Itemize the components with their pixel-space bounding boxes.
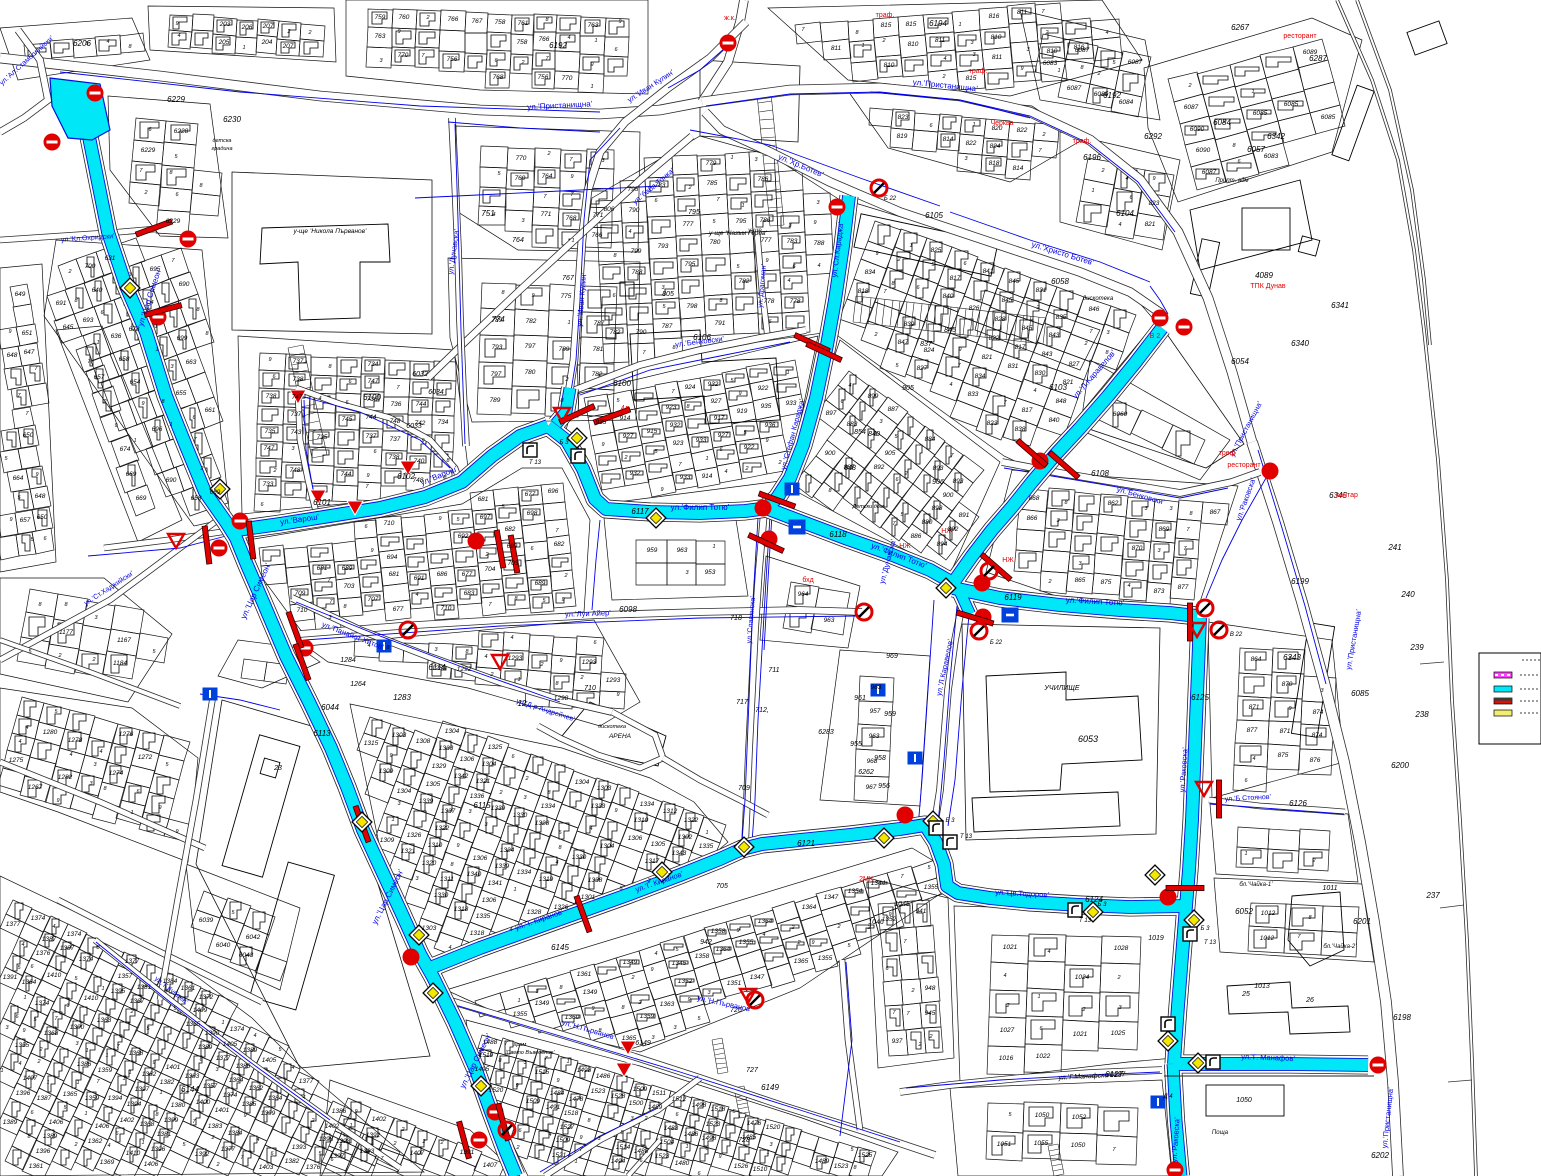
svg-text:9: 9 <box>579 1135 582 1141</box>
svg-text:824: 824 <box>924 347 935 354</box>
svg-text:1: 1 <box>130 810 133 816</box>
svg-text:1359: 1359 <box>640 1013 655 1020</box>
svg-text:9: 9 <box>9 517 12 523</box>
svg-text:1: 1 <box>517 998 520 1004</box>
svg-text:764: 764 <box>542 173 553 180</box>
svg-text:1369: 1369 <box>100 1159 115 1166</box>
svg-text:1292: 1292 <box>457 666 472 673</box>
svg-text:1374: 1374 <box>67 931 82 938</box>
svg-text:1: 1 <box>517 677 520 683</box>
svg-text:1310: 1310 <box>634 817 649 824</box>
svg-text:736: 736 <box>367 396 378 403</box>
svg-text:651: 651 <box>22 330 33 337</box>
svg-text:846: 846 <box>1089 306 1100 313</box>
svg-text:1303: 1303 <box>392 732 407 739</box>
svg-text:детска: детска <box>213 138 232 144</box>
svg-text:4: 4 <box>150 300 153 306</box>
svg-text:841: 841 <box>983 268 994 275</box>
svg-text:1365: 1365 <box>622 1035 637 1042</box>
svg-text:1011: 1011 <box>1322 885 1337 892</box>
svg-text:1402: 1402 <box>372 1116 387 1123</box>
svg-text:9: 9 <box>590 62 593 68</box>
svg-text:698: 698 <box>527 510 538 517</box>
svg-text:1397: 1397 <box>135 1086 150 1093</box>
svg-text:2: 2 <box>579 675 583 681</box>
svg-text:Д 4: Д 4 <box>1162 1094 1173 1100</box>
svg-text:865: 865 <box>1075 577 1086 584</box>
svg-text:727: 727 <box>746 1067 759 1074</box>
svg-text:9: 9 <box>618 19 621 25</box>
svg-text:874: 874 <box>1312 732 1323 739</box>
svg-text:1324: 1324 <box>500 847 515 854</box>
svg-text:2: 2 <box>564 377 568 383</box>
svg-text:1315: 1315 <box>364 740 379 747</box>
svg-text:9: 9 <box>765 438 768 444</box>
svg-text:737: 737 <box>293 358 304 365</box>
svg-text:1306: 1306 <box>460 756 475 763</box>
svg-text:744: 744 <box>341 471 352 478</box>
svg-text:645: 645 <box>63 324 74 331</box>
svg-text:6090: 6090 <box>1190 126 1205 133</box>
svg-text:737: 737 <box>390 436 401 443</box>
svg-text:814: 814 <box>1013 165 1024 172</box>
svg-text:835: 835 <box>1056 314 1067 321</box>
svg-text:6098: 6098 <box>619 605 637 614</box>
svg-text:828: 828 <box>995 316 1006 323</box>
svg-text:1376: 1376 <box>36 950 51 957</box>
svg-text:6100: 6100 <box>613 379 631 388</box>
svg-text:6202: 6202 <box>1371 1151 1389 1160</box>
svg-text:1: 1 <box>128 1070 131 1076</box>
svg-text:893: 893 <box>953 478 964 485</box>
svg-text:6117: 6117 <box>631 507 649 516</box>
svg-text:1334: 1334 <box>640 801 655 808</box>
svg-text:1509: 1509 <box>556 1137 571 1144</box>
svg-text:712,: 712, <box>755 707 769 714</box>
svg-text:815: 815 <box>881 22 892 29</box>
svg-text:9: 9 <box>175 829 178 835</box>
svg-text:891: 891 <box>959 512 970 519</box>
svg-text:657: 657 <box>20 517 31 524</box>
svg-text:2: 2 <box>643 1116 647 1122</box>
svg-text:906: 906 <box>932 479 944 486</box>
svg-text:6104: 6104 <box>1116 209 1134 218</box>
svg-text:2: 2 <box>36 1059 40 1065</box>
svg-text:6087: 6087 <box>1067 85 1082 92</box>
svg-text:УЧИЛИЩЕ: УЧИЛИЩЕ <box>1043 685 1079 692</box>
svg-text:1330: 1330 <box>572 854 587 861</box>
svg-text:781: 781 <box>593 346 604 353</box>
svg-text:747: 747 <box>292 394 303 401</box>
svg-text:1: 1 <box>766 1150 769 1156</box>
svg-text:870: 870 <box>1282 681 1293 688</box>
svg-text:4: 4 <box>1105 30 1108 36</box>
svg-text:770: 770 <box>516 155 527 162</box>
svg-text:1284: 1284 <box>340 657 356 664</box>
svg-text:758: 758 <box>517 39 528 46</box>
svg-text:1303: 1303 <box>422 925 437 932</box>
svg-text:1337: 1337 <box>441 808 456 815</box>
svg-text:2: 2 <box>881 38 885 44</box>
svg-text:траф.: траф. <box>876 12 895 19</box>
svg-text:1022: 1022 <box>1036 1053 1051 1060</box>
svg-text:697: 697 <box>480 514 491 521</box>
svg-text:1: 1 <box>685 1144 688 1150</box>
svg-text:4: 4 <box>628 229 631 235</box>
svg-text:траф.: траф. <box>969 68 988 75</box>
svg-text:9: 9 <box>660 487 663 493</box>
svg-text:9: 9 <box>614 808 617 814</box>
svg-text:1: 1 <box>1091 188 1094 194</box>
svg-text:2: 2 <box>524 776 528 782</box>
svg-text:830: 830 <box>1035 370 1046 377</box>
svg-text:831: 831 <box>1008 363 1019 370</box>
svg-text:9: 9 <box>389 753 392 759</box>
svg-text:905: 905 <box>885 450 896 457</box>
svg-text:1396: 1396 <box>151 1146 166 1153</box>
svg-text:4: 4 <box>724 469 727 475</box>
svg-text:897: 897 <box>826 410 837 417</box>
svg-text:1: 1 <box>221 1020 224 1026</box>
svg-text:932: 932 <box>708 381 719 388</box>
svg-text:690: 690 <box>179 281 190 288</box>
svg-text:953: 953 <box>705 569 716 576</box>
svg-text:1393: 1393 <box>292 1144 307 1151</box>
svg-text:738: 738 <box>293 376 304 383</box>
svg-text:1355: 1355 <box>739 939 754 946</box>
svg-text:710: 710 <box>584 685 596 692</box>
svg-text:треф: треф <box>1219 450 1236 457</box>
svg-text:923: 923 <box>673 440 684 447</box>
svg-text:886: 886 <box>911 533 922 540</box>
svg-text:4: 4 <box>817 263 820 269</box>
svg-text:669: 669 <box>136 495 147 502</box>
svg-text:1308: 1308 <box>416 738 431 745</box>
svg-text:805: 805 <box>662 291 674 298</box>
svg-text:1518: 1518 <box>564 1110 579 1117</box>
svg-text:1334: 1334 <box>541 803 556 810</box>
svg-text:4: 4 <box>291 1065 294 1071</box>
svg-text:4: 4 <box>415 592 418 598</box>
svg-text:6144: 6144 <box>181 1085 199 1094</box>
svg-text:9: 9 <box>738 391 741 397</box>
svg-text:1397: 1397 <box>330 1153 345 1160</box>
svg-text:1051: 1051 <box>997 1141 1012 1148</box>
svg-text:238: 238 <box>1414 710 1429 719</box>
svg-text:811: 811 <box>992 54 1003 61</box>
svg-text:726: 726 <box>730 1007 742 1014</box>
svg-text:1024: 1024 <box>1075 974 1090 981</box>
svg-text:1345: 1345 <box>672 960 687 967</box>
svg-text:768: 768 <box>493 74 504 81</box>
svg-text:Т 13: Т 13 <box>529 460 542 466</box>
svg-text:1: 1 <box>96 340 99 346</box>
svg-text:1335: 1335 <box>476 913 491 920</box>
svg-text:1396: 1396 <box>16 1090 31 1097</box>
svg-text:677: 677 <box>462 571 473 578</box>
svg-text:6085: 6085 <box>1094 91 1109 98</box>
svg-text:822: 822 <box>966 140 977 147</box>
svg-text:1336: 1336 <box>470 793 485 800</box>
svg-text:1344: 1344 <box>871 880 886 887</box>
svg-text:689: 689 <box>535 580 546 587</box>
svg-text:4: 4 <box>548 1132 551 1138</box>
svg-text:854: 854 <box>854 429 866 436</box>
svg-text:9: 9 <box>421 438 424 444</box>
svg-text:4: 4 <box>302 1095 305 1101</box>
svg-text:1364: 1364 <box>22 979 37 986</box>
svg-text:833: 833 <box>968 391 979 398</box>
svg-text:6089: 6089 <box>1303 49 1318 56</box>
svg-text:838: 838 <box>1015 426 1026 433</box>
svg-text:1500: 1500 <box>629 1100 644 1107</box>
svg-text:955: 955 <box>850 741 862 748</box>
svg-text:1521: 1521 <box>552 1152 567 1159</box>
svg-text:963: 963 <box>824 617 835 624</box>
svg-text:2: 2 <box>286 29 290 35</box>
svg-text:4: 4 <box>107 1143 110 1149</box>
svg-text:1364: 1364 <box>758 918 773 925</box>
svg-text:6149: 6149 <box>761 1083 779 1092</box>
svg-text:23: 23 <box>273 765 282 772</box>
svg-text:1: 1 <box>85 1048 88 1054</box>
svg-text:790: 790 <box>636 329 647 336</box>
svg-text:922: 922 <box>744 444 755 451</box>
svg-text:2: 2 <box>546 151 550 157</box>
svg-text:9: 9 <box>591 1006 594 1012</box>
svg-text:1328: 1328 <box>535 820 550 827</box>
svg-text:6292: 6292 <box>1144 132 1162 141</box>
svg-text:бл.’Чайка-1’: бл.’Чайка-1’ <box>1239 881 1273 888</box>
svg-text:6054: 6054 <box>1231 357 1249 366</box>
svg-text:1: 1 <box>571 238 574 244</box>
svg-text:1347: 1347 <box>750 974 765 981</box>
svg-text:1: 1 <box>122 1076 125 1082</box>
svg-text:9: 9 <box>736 928 739 934</box>
svg-text:747: 747 <box>264 445 275 452</box>
svg-text:6060: 6060 <box>1113 411 1128 418</box>
svg-text:4: 4 <box>555 860 558 866</box>
svg-text:6039: 6039 <box>199 917 214 924</box>
svg-text:843: 843 <box>1042 351 1053 358</box>
svg-text:691: 691 <box>56 300 67 307</box>
svg-text:845: 845 <box>1002 297 1013 304</box>
svg-text:843: 843 <box>1049 332 1060 339</box>
svg-text:1: 1 <box>594 38 597 44</box>
svg-text:811: 811 <box>1017 9 1028 16</box>
svg-text:1480: 1480 <box>675 1160 690 1167</box>
svg-text:695: 695 <box>150 266 161 273</box>
svg-text:775: 775 <box>561 293 572 300</box>
svg-text:6125: 6125 <box>1191 693 1209 702</box>
svg-text:Б 3: Б 3 <box>1201 926 1211 932</box>
svg-text:6198: 6198 <box>1393 1013 1411 1022</box>
svg-text:964: 964 <box>798 591 809 598</box>
svg-text:2: 2 <box>917 1042 921 1048</box>
svg-text:933: 933 <box>680 474 691 481</box>
svg-text:682: 682 <box>505 526 516 533</box>
svg-text:6340: 6340 <box>1291 339 1309 348</box>
svg-text:Б 3: Б 3 <box>946 818 956 824</box>
svg-text:6085: 6085 <box>1284 101 1299 108</box>
svg-text:9: 9 <box>22 1028 25 1034</box>
svg-text:717: 717 <box>736 699 749 706</box>
svg-text:1406: 1406 <box>144 1161 159 1168</box>
svg-text:1396: 1396 <box>36 1148 51 1155</box>
svg-text:2: 2 <box>1083 341 1087 347</box>
svg-text:2: 2 <box>744 466 748 472</box>
svg-text:1016: 1016 <box>999 1055 1014 1062</box>
svg-text:6040: 6040 <box>216 942 231 949</box>
svg-text:1274: 1274 <box>109 770 124 777</box>
svg-text:767: 767 <box>472 18 483 25</box>
svg-text:2: 2 <box>520 60 524 66</box>
svg-text:1: 1 <box>23 995 26 1001</box>
svg-text:1489: 1489 <box>815 1158 830 1165</box>
svg-text:648: 648 <box>35 493 46 500</box>
svg-text:935: 935 <box>761 403 772 410</box>
svg-text:1399: 1399 <box>261 1110 276 1117</box>
svg-text:Б 22: Б 22 <box>990 640 1003 646</box>
svg-text:922: 922 <box>758 385 769 392</box>
svg-text:710: 710 <box>441 605 452 612</box>
svg-text:827: 827 <box>1069 361 1080 368</box>
svg-text:797: 797 <box>491 371 502 378</box>
svg-text:1167: 1167 <box>117 637 131 644</box>
svg-text:815: 815 <box>966 75 977 82</box>
svg-text:703: 703 <box>508 560 519 567</box>
svg-text:1322: 1322 <box>435 825 450 832</box>
svg-text:1184: 1184 <box>113 660 127 667</box>
svg-text:869: 869 <box>1159 526 1170 533</box>
svg-text:Т 13: Т 13 <box>1204 940 1217 946</box>
svg-text:691: 691 <box>414 575 425 582</box>
svg-text:936: 936 <box>765 422 776 429</box>
svg-text:6083: 6083 <box>1043 60 1058 67</box>
svg-text:815: 815 <box>906 21 917 28</box>
svg-text:9: 9 <box>366 473 369 479</box>
svg-text:6087: 6087 <box>1184 104 1199 111</box>
svg-text:1304: 1304 <box>397 788 412 795</box>
svg-text:905: 905 <box>902 385 914 392</box>
svg-text:1: 1 <box>567 320 570 326</box>
svg-text:868: 868 <box>1029 495 1040 502</box>
svg-text:900: 900 <box>825 450 836 457</box>
svg-text:927: 927 <box>711 398 722 405</box>
svg-text:1305: 1305 <box>651 841 666 848</box>
svg-text:26: 26 <box>1305 997 1314 1004</box>
svg-text:1333: 1333 <box>439 745 454 752</box>
svg-text:6121: 6121 <box>797 839 815 848</box>
svg-text:1484: 1484 <box>550 1090 565 1097</box>
svg-text:900: 900 <box>943 492 954 499</box>
svg-text:9: 9 <box>158 805 161 811</box>
svg-text:1264: 1264 <box>350 681 366 688</box>
svg-text:6229: 6229 <box>141 147 156 154</box>
svg-text:1330: 1330 <box>513 812 528 819</box>
svg-text:4: 4 <box>943 56 946 62</box>
svg-text:4: 4 <box>1252 756 1255 762</box>
svg-text:9: 9 <box>559 658 562 664</box>
svg-text:1389: 1389 <box>243 1047 258 1054</box>
svg-text:826: 826 <box>969 305 980 312</box>
svg-text:2: 2 <box>129 1009 133 1015</box>
svg-text:4: 4 <box>492 212 495 218</box>
svg-text:1498: 1498 <box>577 1067 592 1074</box>
svg-text:870: 870 <box>1132 545 1143 552</box>
svg-text:899: 899 <box>868 393 879 400</box>
svg-text:818: 818 <box>858 288 869 295</box>
svg-text:1410: 1410 <box>126 1150 141 1157</box>
svg-text:9: 9 <box>1288 706 1291 712</box>
svg-text:1027: 1027 <box>1000 1027 1015 1034</box>
svg-text:Б 22: Б 22 <box>884 196 897 202</box>
svg-text:6192: 6192 <box>549 41 567 50</box>
svg-text:814: 814 <box>943 136 954 143</box>
svg-text:1339: 1339 <box>419 798 434 805</box>
svg-text:1: 1 <box>105 1053 108 1059</box>
svg-text:789: 789 <box>559 346 570 353</box>
svg-text:933: 933 <box>696 437 707 444</box>
svg-text:9: 9 <box>601 442 604 448</box>
svg-text:1406: 1406 <box>49 1119 64 1126</box>
svg-text:1: 1 <box>1251 89 1254 95</box>
svg-text:9: 9 <box>35 472 38 478</box>
svg-text:880: 880 <box>922 519 933 526</box>
svg-text:1349: 1349 <box>583 989 598 996</box>
svg-text:6053: 6053 <box>1078 734 1098 744</box>
svg-text:9: 9 <box>1152 176 1155 182</box>
svg-text:647: 647 <box>24 349 35 356</box>
svg-text:2: 2 <box>102 399 106 405</box>
svg-text:НЖ: НЖ <box>899 543 911 550</box>
svg-text:817: 817 <box>1015 344 1026 351</box>
svg-text:дискотека: дискотека <box>598 724 626 730</box>
svg-text:734: 734 <box>438 419 449 426</box>
svg-text:1347: 1347 <box>824 894 839 901</box>
svg-text:806: 806 <box>604 206 615 213</box>
svg-text:4: 4 <box>18 739 21 745</box>
svg-text:2: 2 <box>489 672 493 678</box>
svg-text:6085: 6085 <box>1321 114 1336 121</box>
svg-text:25: 25 <box>1241 991 1250 998</box>
svg-text:1390: 1390 <box>205 1030 220 1037</box>
svg-text:2: 2 <box>1041 132 1045 138</box>
svg-text:206: 206 <box>241 24 253 31</box>
svg-text:1504: 1504 <box>660 1139 675 1146</box>
svg-text:1368: 1368 <box>129 1050 144 1057</box>
svg-text:650: 650 <box>23 432 34 439</box>
svg-text:9: 9 <box>958 347 961 353</box>
svg-text:1055: 1055 <box>1034 1140 1049 1147</box>
svg-text:2: 2 <box>790 925 794 931</box>
svg-text:6085: 6085 <box>1253 110 1268 117</box>
svg-text:4: 4 <box>318 396 321 402</box>
svg-text:669: 669 <box>126 471 137 478</box>
svg-text:771: 771 <box>541 211 552 218</box>
svg-text:1523: 1523 <box>655 1153 670 1160</box>
svg-text:1520: 1520 <box>766 1124 781 1131</box>
svg-text:4: 4 <box>484 654 487 660</box>
svg-text:1052: 1052 <box>1072 1114 1087 1121</box>
svg-text:884: 884 <box>925 436 936 443</box>
svg-text:743: 743 <box>291 429 302 436</box>
svg-text:764: 764 <box>512 237 524 244</box>
svg-text:797: 797 <box>525 343 536 350</box>
svg-text:1383: 1383 <box>185 1073 200 1080</box>
svg-text:1: 1 <box>84 1111 87 1117</box>
svg-text:1402: 1402 <box>325 1123 340 1130</box>
